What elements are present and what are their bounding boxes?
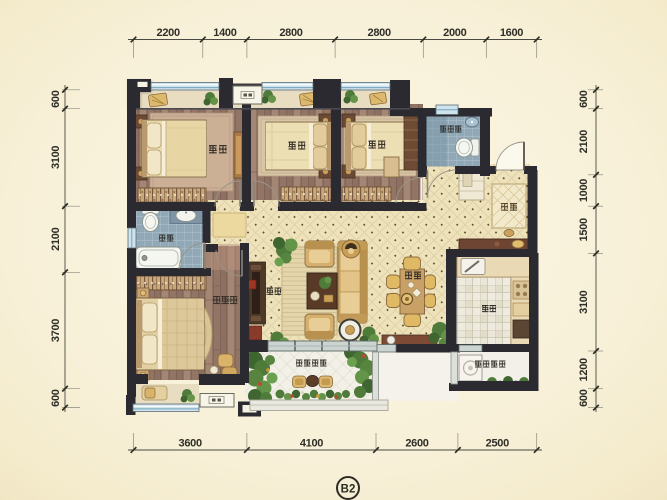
svg-text:B2: B2	[341, 484, 356, 496]
svg-text:1000: 1000	[578, 179, 590, 202]
svg-text:2100: 2100	[578, 130, 590, 153]
svg-text:1200: 1200	[578, 358, 590, 381]
svg-text:2100: 2100	[50, 227, 62, 250]
svg-text:3600: 3600	[179, 438, 202, 450]
svg-text:2800: 2800	[279, 27, 302, 39]
svg-text:2600: 2600	[405, 438, 428, 450]
svg-text:600: 600	[50, 389, 62, 407]
svg-text:4100: 4100	[300, 438, 323, 450]
svg-text:2500: 2500	[486, 438, 509, 450]
svg-text:600: 600	[578, 90, 590, 108]
svg-text:1400: 1400	[213, 27, 236, 39]
svg-text:2800: 2800	[368, 27, 391, 39]
svg-text:600: 600	[578, 389, 590, 407]
svg-text:2000: 2000	[443, 27, 466, 39]
svg-text:3100: 3100	[50, 146, 62, 169]
svg-text:3700: 3700	[50, 319, 62, 342]
svg-text:3100: 3100	[578, 290, 590, 313]
svg-text:1600: 1600	[500, 27, 523, 39]
svg-text:1500: 1500	[578, 218, 590, 241]
svg-text:2200: 2200	[157, 27, 180, 39]
svg-text:600: 600	[50, 90, 62, 108]
